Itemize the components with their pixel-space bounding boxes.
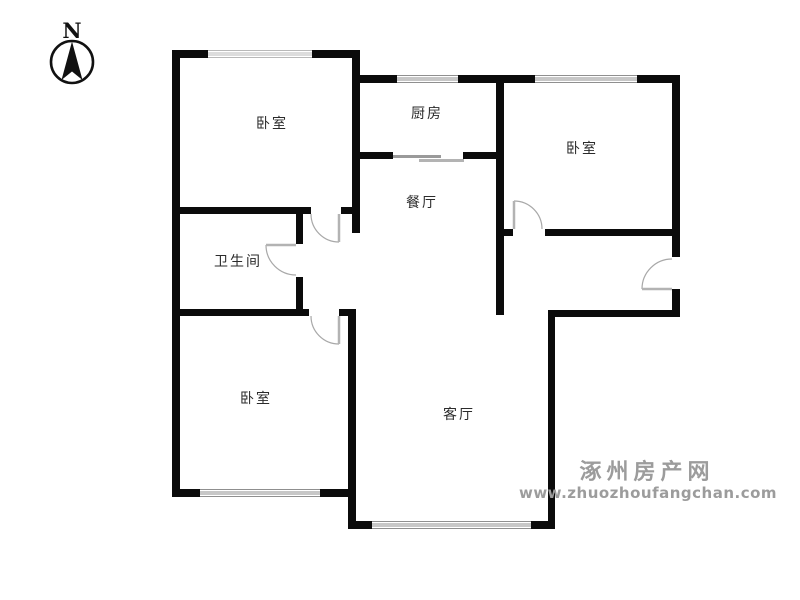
- wall-bathroom-right-lower: [296, 277, 303, 316]
- room-label-bedroom-bottom-left: 卧室: [240, 388, 272, 408]
- room-label-bedroom-top-left: 卧室: [256, 113, 288, 133]
- room-label-kitchen: 厨房: [411, 103, 443, 123]
- compass-icon: N: [44, 14, 104, 92]
- wall-living-left: [348, 310, 356, 529]
- room-label-bedroom-top-right: 卧室: [566, 138, 598, 158]
- room-label-living: 客厅: [443, 404, 475, 424]
- wall-bedroom-bl-top-right: [339, 309, 356, 316]
- room-label-dining: 餐厅: [406, 192, 438, 212]
- watermark-site-name: 涿州房产网: [579, 454, 714, 486]
- wall-bathroom-top-right: [341, 207, 360, 214]
- wall-bedroom-tr-bottom-left: [496, 229, 513, 236]
- wall-bedroom-bl-top-left: [172, 309, 309, 316]
- wall-exterior-left: [172, 50, 180, 497]
- wall-bathroom-top-left: [172, 207, 311, 214]
- door-arc-bedroom-bottom-left: [311, 316, 339, 344]
- door-swings: [0, 0, 800, 600]
- wall-kitchen-bottom-left: [352, 152, 393, 159]
- wall-bedroom-tr-bottom-right: [545, 229, 680, 236]
- window-living-room: [372, 521, 531, 529]
- window-bedroom-top-right: [535, 75, 637, 83]
- door-arc-bedroom-top-left: [311, 214, 339, 242]
- window-bedroom-bottom-left: [200, 489, 320, 497]
- sliding-door-kitchen-panel-1: [393, 155, 441, 158]
- sliding-door-kitchen-panel-2: [419, 159, 464, 162]
- door-arc-bathroom: [266, 245, 296, 275]
- door-arc-entry: [642, 259, 672, 289]
- door-arc-bedroom-top-right: [514, 201, 542, 229]
- watermark-url: www.zhuozhoufangchan.com: [519, 484, 777, 502]
- floor-plan: N: [0, 0, 800, 600]
- wall-hall-bottom: [548, 310, 680, 317]
- window-kitchen: [397, 75, 458, 83]
- compass-north-letter: N: [62, 18, 81, 43]
- north-arrow-icon: [62, 42, 83, 81]
- window-bedroom-top-left: [208, 50, 312, 58]
- wall-central-vertical: [496, 75, 504, 315]
- room-label-bathroom: 卫生间: [214, 251, 262, 271]
